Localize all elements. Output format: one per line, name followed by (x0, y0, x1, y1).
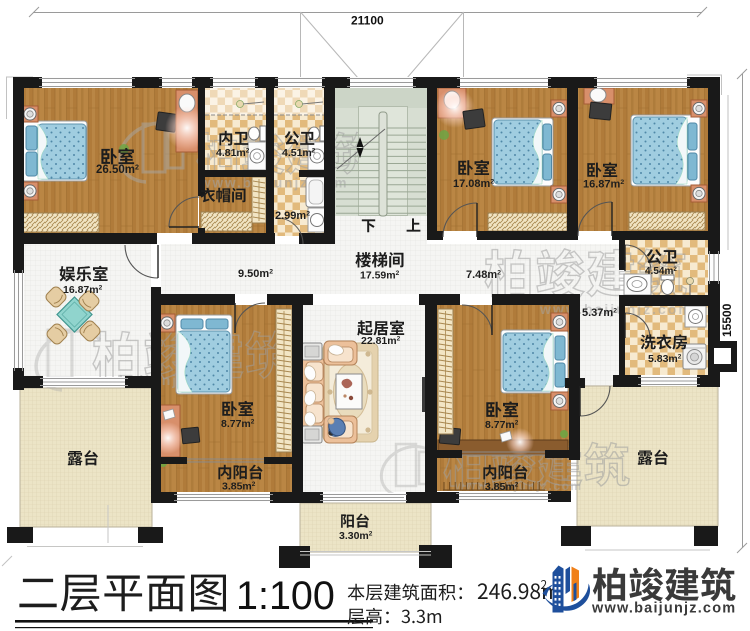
svg-text:3.30m2: 3.30m2 (339, 530, 373, 542)
svg-text:21100: 21100 (351, 14, 384, 28)
svg-text:16.87m2: 16.87m2 (583, 179, 624, 191)
svg-text:17.59m2: 17.59m2 (360, 270, 400, 282)
svg-text:16.87m2: 16.87m2 (63, 284, 103, 296)
svg-text:22.81m2: 22.81m2 (361, 335, 401, 347)
svg-text:www.baijunjz.com: www.baijunjz.com (591, 601, 736, 617)
svg-text:1:100: 1:100 (236, 574, 335, 618)
svg-text:9.50m2: 9.50m2 (238, 268, 273, 280)
svg-text:4.81m2: 4.81m2 (216, 147, 250, 159)
svg-text:26.50m2: 26.50m2 (96, 163, 139, 176)
svg-text:5.83m2: 5.83m2 (648, 353, 682, 365)
svg-text:7.48m2: 7.48m2 (466, 269, 501, 281)
svg-text:17.08m2: 17.08m2 (453, 178, 494, 190)
svg-text:4.51m2: 4.51m2 (282, 147, 316, 159)
svg-text:3.85m2: 3.85m2 (222, 481, 256, 493)
svg-text:2.99m2: 2.99m2 (275, 210, 310, 222)
svg-text:5.37m2: 5.37m2 (582, 307, 617, 319)
svg-text:8.77m2: 8.77m2 (485, 419, 519, 431)
svg-text:4.54m2: 4.54m2 (645, 266, 677, 277)
svg-text:8.77m2: 8.77m2 (221, 418, 255, 430)
svg-text:3.85m2: 3.85m2 (485, 481, 519, 493)
svg-text:15500: 15500 (720, 303, 734, 337)
